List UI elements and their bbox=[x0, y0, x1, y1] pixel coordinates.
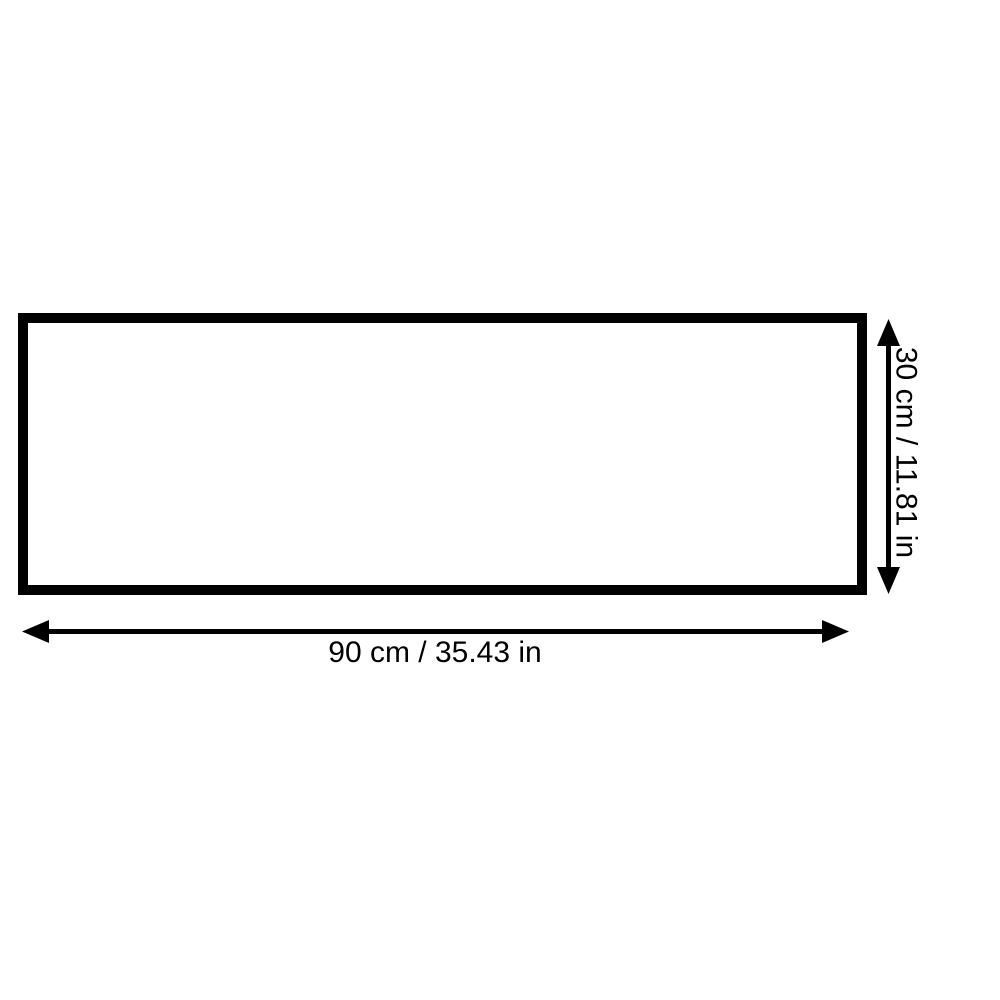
svg-text:90 cm / 35.43 in: 90 cm / 35.43 in bbox=[328, 636, 541, 669]
svg-text:30 cm / 11.81 in: 30 cm / 11.81 in bbox=[890, 347, 923, 558]
